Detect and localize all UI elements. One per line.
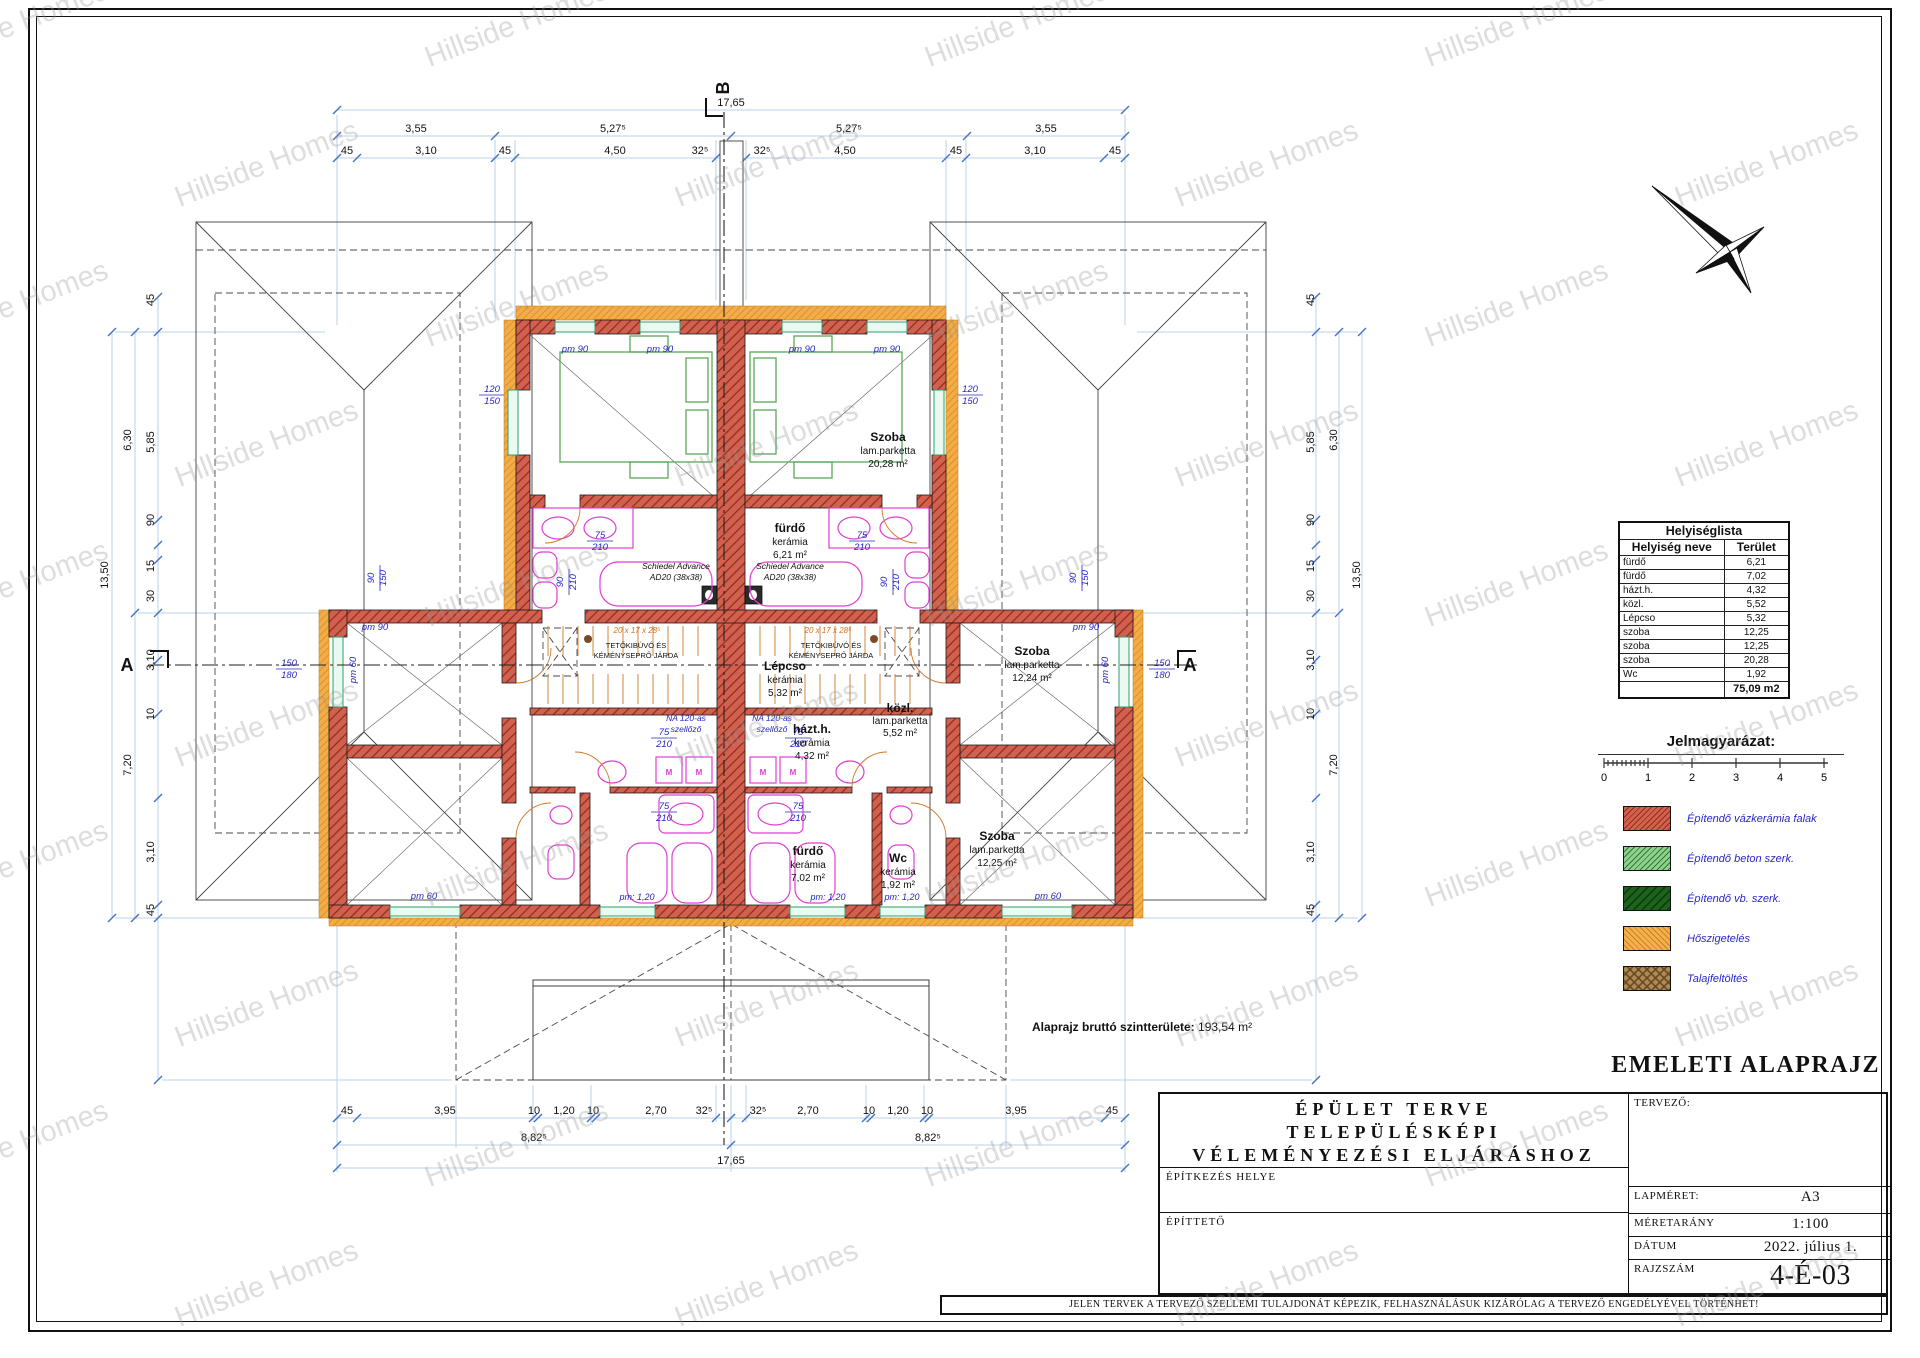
drawing-sheet: 17,653,555,27⁵5,27⁵3,55453,10454,5032⁵32…	[0, 0, 1920, 1358]
sheet-frame-inner	[36, 16, 1882, 1322]
